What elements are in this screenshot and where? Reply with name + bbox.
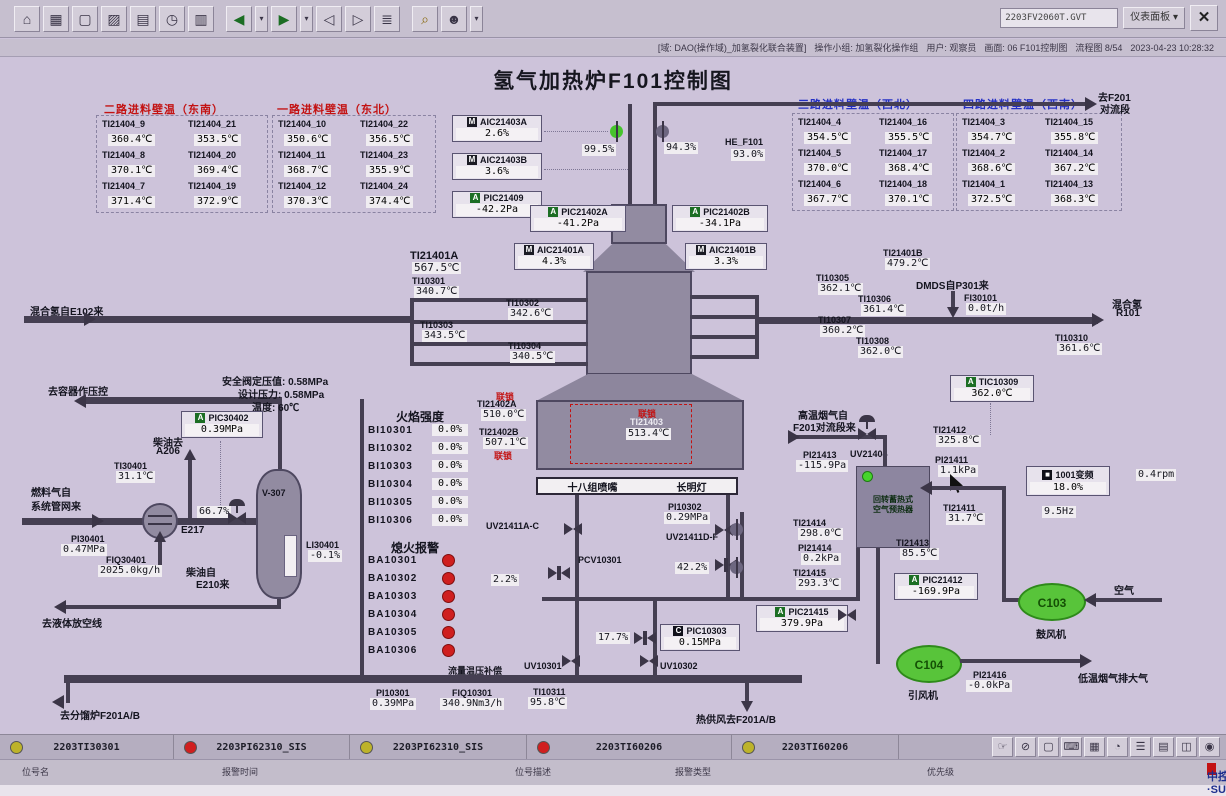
pi10301-value: 0.39MPa <box>370 698 416 710</box>
fuel-valve-value: 66.7% <box>197 506 231 518</box>
history-icon[interactable]: ◷ <box>159 6 185 32</box>
alarm-priority-dot <box>360 741 373 754</box>
user-menu-icon[interactable]: ▾ <box>470 6 483 32</box>
a-badge: A <box>548 207 558 217</box>
valve-actuator-icon <box>229 499 245 506</box>
wall-temp-item: TI21404_3354.7℃ <box>962 117 1033 145</box>
report-icon[interactable]: ▥ <box>188 6 214 32</box>
fuel-gas-label2: 系统管网来 <box>31 498 81 513</box>
v307-level-gauge <box>284 535 297 577</box>
uv21411df-tag: UV21411D-F <box>666 532 718 542</box>
home-icon[interactable]: ⌂ <box>14 6 40 32</box>
a-badge: A <box>775 607 785 617</box>
wall-temp-panel-4: TI21404_3354.7℃TI21404_15355.8℃TI21404_2… <box>956 113 1122 211</box>
alarm-dot-icon <box>442 644 455 657</box>
furnace-upper-body <box>586 271 692 375</box>
pi10301-tag: PI10301 <box>376 688 410 698</box>
to-frac-label: 去分馏炉F201A/B <box>60 707 140 722</box>
flameout-row: BA10306 <box>368 644 455 657</box>
e217-label: E217 <box>181 525 204 536</box>
a-badge: A <box>470 193 480 203</box>
m-badge: M <box>467 155 477 165</box>
pi21414-value: 0.2kPa <box>801 553 841 565</box>
grid-icon[interactable]: ▦ <box>1084 737 1105 757</box>
wall-temp-item: TI21404_6367.7℃ <box>798 179 867 207</box>
field-tagname: 位号名 <box>22 765 49 778</box>
process-diagram: 氢气加热炉F101控制图 二路进料壁温（东南） 一路进料壁温（东北） 三路进料壁… <box>0 57 1226 734</box>
damper-b-value: 94.3% <box>664 142 698 154</box>
fiq30401-value: 2025.0kg/h <box>98 565 162 577</box>
ti10311-value: 95.8℃ <box>528 697 567 709</box>
blower-label: 鼓风机 <box>1036 626 1066 641</box>
status-user: 用户: 观察员 <box>926 41 976 54</box>
ti10303-value: 343.5℃ <box>422 330 467 342</box>
drain-pipe <box>66 605 281 609</box>
aic21401a-box[interactable]: MAIC21401A 4.3% <box>514 243 594 270</box>
furnace-shoulder <box>536 374 744 401</box>
wall-temp-item: TI21404_23355.9℃ <box>360 150 430 178</box>
fuel-gas-pipe <box>22 518 258 525</box>
pass-pipe-3 <box>410 342 588 346</box>
aic21401b-box[interactable]: MAIC21401B 3.3% <box>685 243 767 270</box>
uv21404-actuator-icon <box>859 415 875 422</box>
ti21411-tag: TI21411 <box>943 503 976 513</box>
flame-row: BI103010.0% <box>368 424 468 436</box>
status-bar: [域: DAO(操作域)_加氢裂化联合装置] 操作小组: 加氢裂化操作组 用户:… <box>0 39 1226 57</box>
ti21402a-value: 510.0℃ <box>481 409 526 421</box>
frac-branch <box>66 683 70 703</box>
status-datetime: 2023-04-23 10:28:32 <box>1130 43 1214 53</box>
tic10309-box[interactable]: ATIC10309 362.0℃ <box>950 375 1034 402</box>
pic30402-box[interactable]: APIC30402 0.39MPa <box>181 411 263 438</box>
interlock-label-b: 联锁 <box>494 449 512 462</box>
wall-temp-item: TI21404_7371.4℃ <box>102 181 176 209</box>
aic21403b-box[interactable]: MAIC21403B 3.6% <box>452 153 542 180</box>
air-trim-valve-icon[interactable] <box>838 609 856 621</box>
wall-temp-item: TI21404_19372.9℃ <box>188 181 262 209</box>
m-badge: M <box>696 245 706 255</box>
low-flue-label: 低温烟气排大气 <box>1078 670 1148 685</box>
feed-manifold <box>410 298 414 364</box>
ti10301-tag: TI10301 <box>412 276 445 286</box>
fuel-branch-valve-icon[interactable] <box>634 631 656 645</box>
ti10304-value: 340.5℃ <box>510 351 555 363</box>
flameout-row: BA10301 <box>368 554 455 567</box>
wall-temp-panel-3: TI21404_4354.5℃TI21404_16355.5℃TI21404_5… <box>792 113 954 211</box>
c-badge: C <box>673 626 683 636</box>
to-drain-label: 去液体放空线 <box>42 615 102 630</box>
hot-flue-label2: F201对流段来 <box>793 419 856 434</box>
diesel-out-pipe <box>188 459 192 519</box>
fiq10301-tag: FIQ10301 <box>452 688 492 698</box>
ti21402b-value: 507.1℃ <box>483 437 528 449</box>
pic21409-box[interactable]: APIC21409 -42.2Pa <box>452 191 542 218</box>
alarm-priority-dot <box>184 741 197 754</box>
uv10302-valve-icon[interactable] <box>640 655 658 667</box>
user-icon[interactable]: ☻ <box>441 6 467 32</box>
monitor-icon[interactable]: ▢ <box>1038 737 1059 757</box>
flameout-row: BA10304 <box>368 608 455 621</box>
uv21404-valve-icon[interactable] <box>858 428 876 440</box>
flame-title: 火焰强度 <box>396 408 444 425</box>
diesel-from-label2: E210来 <box>196 576 229 591</box>
flame-intensity-list: BI103010.0%BI103020.0%BI103030.0%BI10304… <box>368 424 468 526</box>
diesel-out-arrow <box>184 449 196 460</box>
vfd-hz-value: 9.5Hz <box>1042 506 1076 518</box>
ti21403-tag: TI21403 <box>630 417 663 427</box>
preheater-air-out <box>856 548 860 600</box>
flame-row: BI103020.0% <box>368 442 468 454</box>
stack-damper-a-icon[interactable] <box>610 125 623 138</box>
alarm-priority-dot <box>10 741 23 754</box>
ti10303-tag: TI10303 <box>420 320 453 330</box>
uv10301-valve-icon[interactable] <box>562 655 580 667</box>
alarm-dot-icon <box>442 572 455 585</box>
wall-temp-panel-1: TI21404_10350.6℃TI21404_22356.5℃TI21404_… <box>272 115 436 213</box>
diesel-to-label2: A206 <box>156 446 180 457</box>
ti21415-tag: TI21415 <box>793 568 826 578</box>
instrument-panel-button[interactable]: 仪表面板 ▾ <box>1123 7 1185 29</box>
ti21401b-tag: TI21401B <box>883 248 923 258</box>
alarm-cell[interactable]: 2203TI60206 <box>732 735 899 759</box>
uv10302-tag: UV10302 <box>660 661 698 671</box>
disable-icon[interactable]: ⊘ <box>1015 737 1036 757</box>
field-alarmtime: 报警时间 <box>222 765 258 778</box>
left-boundary-pipe <box>360 399 364 679</box>
flame-row: BI103030.0% <box>368 460 468 472</box>
ti10304-tag: TI10304 <box>508 341 541 351</box>
preheater-inlet <box>883 435 887 467</box>
list-icon[interactable]: ☰ <box>1130 737 1151 757</box>
li30401-tag: LI30401 <box>306 540 339 550</box>
alarm-dot-icon <box>442 626 455 639</box>
wall-temp-item: TI21404_24374.4℃ <box>360 181 430 209</box>
ti21401b-value: 479.2℃ <box>885 258 930 270</box>
he-f101-tag: HE_F101 <box>725 137 763 147</box>
alarm-cell[interactable]: 2203PI62310_SIS <box>174 735 350 759</box>
pic21402a-box[interactable]: APIC21402A -41.2Pa <box>530 205 626 232</box>
flameout-row: BA10302 <box>368 572 455 585</box>
dmds-arrow <box>947 307 959 318</box>
preheater-label: 回转蓄热式 <box>857 495 929 505</box>
wall-temp-item: TI21404_8370.1℃ <box>102 150 176 178</box>
ti30401-tag: TI30401 <box>114 461 147 471</box>
feed-arrow <box>84 312 96 326</box>
ti10305-tag: TI10305 <box>816 273 849 283</box>
dmds-label: DMDS自P301来 <box>916 277 989 292</box>
ti10301-value: 340.7℃ <box>414 286 459 298</box>
pass-pipe-4 <box>410 362 588 366</box>
ti21411-value: 31.7℃ <box>946 513 985 525</box>
id-fan-label: 引风机 <box>908 687 938 702</box>
diesel-in-pipe <box>158 539 162 565</box>
flame-row: BI103060.0% <box>368 514 468 526</box>
a-badge: A <box>690 207 700 217</box>
m-badge: M <box>467 117 477 127</box>
main-toolbar: ⌂ ▦ ▢ ▨ ▤ ◷ ▥ ◀ ▾ ▶ ▾ ◁ ▷ ≣ ⌕ ☻ ▾ 2203FV… <box>0 0 1226 38</box>
alarm-bar: 2203TI30301 2203PI62310_SIS 2203PI62310_… <box>0 734 1226 759</box>
uv21411ac-tag: UV21411A-C <box>486 521 539 531</box>
pc-arrow <box>74 394 86 408</box>
flameout-row: BA10303 <box>368 590 455 603</box>
outlet-arrow <box>1092 313 1104 327</box>
fiq10301-value: 340.9Nm3/h <box>440 698 504 710</box>
pic21412-box[interactable]: APIC21412 -169.9Pa <box>894 573 978 600</box>
page-prev-icon[interactable]: ◁ <box>316 6 342 32</box>
wall-temp-item: TI21404_14367.2℃ <box>1045 148 1116 176</box>
pi21413-tag: PI21413 <box>803 450 837 460</box>
burner-pcv-value: 2.2% <box>491 574 519 586</box>
vfd-rpm-value: 0.4rpm <box>1136 469 1176 481</box>
pi30401-value: 0.47MPa <box>61 544 107 556</box>
ti21414-value: 298.0℃ <box>798 528 843 540</box>
air-supply-pipe <box>930 486 1006 490</box>
fuel-gas-label: 燃料气自 <box>31 484 71 499</box>
fiq30401-tag: FIQ30401 <box>106 555 146 565</box>
li30401-value: -0.1% <box>308 550 342 562</box>
report-icon[interactable]: ▤ <box>1153 737 1174 757</box>
screen-icon[interactable]: ▢ <box>72 6 98 32</box>
pi21413-value: -115.9Pa <box>796 460 848 472</box>
wall-temp-panel-2: TI21404_9360.4℃TI21404_21353.5℃TI21404_8… <box>96 115 268 213</box>
forward-icon[interactable]: ▶ <box>271 6 297 32</box>
wall-temp-item: TI21404_5370.0℃ <box>798 148 867 176</box>
pass-pipe-1 <box>410 298 588 302</box>
a-badge: A <box>195 413 205 423</box>
ti21401a-value: 567.5℃ <box>412 262 461 274</box>
he-f101-value: 93.0% <box>731 149 765 161</box>
air-damper-b-icon[interactable] <box>730 561 743 574</box>
m-badge: M <box>524 245 534 255</box>
hot-air-branch <box>745 683 749 701</box>
group-icon[interactable]: ▤ <box>130 6 156 32</box>
outlet-pipe <box>755 317 1098 324</box>
window-icon[interactable]: ◫ <box>1176 737 1197 757</box>
overview-icon[interactable]: ▦ <box>43 6 69 32</box>
alarm-toolbar: ☞ ⊘ ▢ ⌨ ▦ ◔ ☰ ▤ ◫ ◉ <box>899 735 1226 759</box>
flame-row: BI103040.0% <box>368 478 468 490</box>
pilot-label: 长明灯 <box>677 479 707 494</box>
alarm-field-bar: 位号名 报警时间 位号描述 报警类型 优先级 中控·SUPCON <box>0 759 1226 785</box>
status-flow[interactable]: 流程图 8/54 <box>1075 41 1122 54</box>
air-inlet-pipe <box>1094 598 1162 602</box>
preheater-run-indicator <box>862 471 873 482</box>
book-icon[interactable]: ≣ <box>374 6 400 32</box>
pic10303-box[interactable]: CPIC10303 0.15MPa <box>660 624 740 651</box>
target-icon[interactable]: ◉ <box>1199 737 1220 757</box>
pilot-fuel-pipe <box>726 495 730 600</box>
ti10310-value: 361.6℃ <box>1057 343 1102 355</box>
a-badge: A <box>966 377 976 387</box>
ti10308-value: 362.0℃ <box>858 346 903 358</box>
flue-out-pipe <box>960 659 1082 663</box>
pi21414-tag: PI21414 <box>798 543 832 553</box>
fi30101-tag: FI30101 <box>964 293 997 303</box>
wall-temp-item: TI21404_10350.6℃ <box>278 119 348 147</box>
ti10311-tag: TI10311 <box>533 687 566 697</box>
pilot-valve-value: 42.2% <box>675 562 709 574</box>
ti10302-tag: TI10302 <box>506 298 539 308</box>
to-f201-label2: 对流段 <box>1100 101 1130 116</box>
alarm-dot-icon <box>442 590 455 603</box>
vfd1001-box[interactable]: ■1001变频 18.0% <box>1026 466 1110 496</box>
wall-temp-item: TI21404_20369.4℃ <box>188 150 262 178</box>
overhead-pipe <box>653 102 1085 106</box>
air-supply-arrow <box>920 481 932 495</box>
alarm-cell[interactable]: 2203TI30301 <box>0 735 174 759</box>
wall-temp-item: TI21404_21353.5℃ <box>188 119 262 147</box>
preheater-label2: 空气预热器 <box>857 505 929 515</box>
wall-temp-item: TI21404_17368.4℃ <box>879 148 948 176</box>
flameout-row: BA10305 <box>368 626 455 639</box>
pi21416-value: -0.0kPa <box>966 680 1012 692</box>
fuel-branch-valve-value: 17.7% <box>596 632 630 644</box>
page-next-icon[interactable]: ▷ <box>345 6 371 32</box>
alarm-priority-dot <box>742 741 755 754</box>
wall-temp-item: TI21404_22356.5℃ <box>360 119 430 147</box>
uv10301-tag: UV10301 <box>524 661 562 671</box>
stack-damper-b-icon[interactable] <box>656 125 669 138</box>
back-icon[interactable]: ◀ <box>226 6 252 32</box>
air-label: 空气 <box>1114 582 1134 597</box>
c103-blower[interactable]: C103 <box>1018 583 1086 621</box>
field-priority: 优先级 <box>927 765 954 778</box>
hot-flue-arrow <box>788 430 800 444</box>
keyboard-icon[interactable]: ⌨ <box>1061 737 1082 757</box>
ti21413-tag: TI21413 <box>896 538 929 548</box>
pcv10301-valve-icon[interactable] <box>548 566 570 580</box>
diesel-in-arrow <box>154 531 166 542</box>
flue-pipe-a <box>628 104 632 204</box>
search-icon[interactable]: ⌕ <box>412 6 438 32</box>
uv21411ac-valve-icon[interactable] <box>564 523 582 535</box>
air-riser <box>1002 486 1006 602</box>
ti21412-value: 325.8℃ <box>936 435 981 447</box>
flameout-alarm-list: BA10301BA10302BA10303BA10304BA10305BA103… <box>368 554 455 657</box>
compensation-label: 流量温压补偿 <box>448 664 502 677</box>
wall-temp-item: TI21404_12370.3℃ <box>278 181 348 209</box>
arrow-to-f201 <box>1085 97 1097 111</box>
dcs-application: ⌂ ▦ ▢ ▨ ▤ ◷ ▥ ◀ ▾ ▶ ▾ ◁ ▷ ≣ ⌕ ☻ ▾ 2203FV… <box>0 0 1226 785</box>
close-icon[interactable]: ✕ <box>1190 5 1218 31</box>
flue-out-arrow <box>1080 654 1092 668</box>
pass-out-3 <box>690 335 757 339</box>
pass-out-4 <box>690 355 757 359</box>
burner-header: 十八组喷嘴 长明灯 <box>536 477 738 495</box>
pic21402b-box[interactable]: APIC21402B -34.1Pa <box>672 205 768 232</box>
field-alarmtype: 报警类型 <box>675 765 711 778</box>
page-title: 氢气加热炉F101控制图 <box>0 65 1226 95</box>
uv21404-tag: UV21404 <box>850 449 888 459</box>
burners-label: 十八组喷嘴 <box>568 479 618 494</box>
ti10306-tag: TI10306 <box>858 294 891 304</box>
pi21411-value: 1.1kPa <box>938 465 978 477</box>
status-screen: 画面: 06 F101控制图 <box>984 41 1067 54</box>
a-badge: A <box>909 575 919 585</box>
pi21411-tag: PI21411 <box>935 455 968 465</box>
hot-air-label: 热供风去F201A/B <box>696 711 776 726</box>
pic21415-box[interactable]: APIC21415 379.9Pa <box>756 605 848 632</box>
fuel-control-valve-icon[interactable] <box>228 512 246 524</box>
field-description: 位号描述 <box>515 765 551 778</box>
pi21416-tag: PI21416 <box>973 670 1007 680</box>
fuel-gas-arrow <box>92 514 104 528</box>
back-menu-icon[interactable]: ▾ <box>255 6 268 32</box>
ti10308-tag: TI10308 <box>856 336 889 346</box>
alarm-cell[interactable]: 2203PI62310_SIS <box>350 735 527 759</box>
wall-temp-item: TI21404_15355.8℃ <box>1045 117 1116 145</box>
flue-downcomer <box>876 548 880 664</box>
ti21415-value: 293.3℃ <box>796 578 841 590</box>
pass-out-2 <box>690 315 757 319</box>
pi10302-tag: PI10302 <box>668 502 702 512</box>
air-damper-a-icon[interactable] <box>730 523 743 536</box>
supcon-logo: 中控·SUPCON <box>1207 763 1216 775</box>
status-domain: [域: DAO(操作域)_加氢裂化联合装置] <box>658 41 807 54</box>
ti21413-value: 85.5℃ <box>900 548 939 560</box>
ti10310-tag: TI10310 <box>1055 333 1088 343</box>
document-selector[interactable]: 2203FV2060T.GVT <box>1000 8 1118 28</box>
hand-icon[interactable]: ☞ <box>992 737 1013 757</box>
pi10302-value: 0.29MPa <box>664 512 710 524</box>
ti30401-value: 31.1℃ <box>116 471 155 483</box>
forward-menu-icon[interactable]: ▾ <box>300 6 313 32</box>
wall-temp-item: TI21404_9360.4℃ <box>102 119 176 147</box>
square-badge: ■ <box>1042 470 1052 480</box>
ti21402a-tag: TI21402A <box>477 399 517 409</box>
mix-h2-out-label2: R101 <box>1116 308 1140 319</box>
c104-id-fan[interactable]: C104 <box>896 645 962 683</box>
status-group: 操作小组: 加氢裂化操作组 <box>814 41 918 54</box>
pi30401-tag: PI30401 <box>71 534 105 544</box>
wall-temp-item: TI21404_2368.6℃ <box>962 148 1033 176</box>
wall-temp-item: TI21404_13368.3℃ <box>1045 179 1116 207</box>
hot-air-duct <box>64 675 802 683</box>
wall-temp-item: TI21404_4354.5℃ <box>798 117 867 145</box>
pass-out-1 <box>690 295 757 299</box>
v307-label: V-307 <box>262 488 286 498</box>
ti10302-value: 342.6℃ <box>508 308 553 320</box>
wall-temp-item: TI21404_11368.7℃ <box>278 150 348 178</box>
flue-pipe-b <box>653 104 657 204</box>
aic21403a-box[interactable]: MAIC21403A 2.6% <box>452 115 542 142</box>
flame-row: BI103050.0% <box>368 496 468 508</box>
alarm-priority-dot <box>537 741 550 754</box>
alarm-cell[interactable]: 2203TI60206 <box>527 735 732 759</box>
ti21403-value: 513.4℃ <box>626 428 671 440</box>
pcv10301-tag: PCV10301 <box>578 555 622 565</box>
outlet-manifold <box>755 295 759 359</box>
air-inlet-arrow <box>1084 593 1096 607</box>
fuel-header-pipe <box>542 597 860 601</box>
alarm-dot-icon <box>442 608 455 621</box>
wall-temp-item: TI21404_18370.1℃ <box>879 179 948 207</box>
clock-icon[interactable]: ◔ <box>1107 737 1128 757</box>
alarm-dot-icon <box>442 554 455 567</box>
furnace-neck <box>583 244 695 272</box>
ti21402b-tag: TI21402B <box>479 427 519 437</box>
trend-icon[interactable]: ▨ <box>101 6 127 32</box>
ti10306-value: 361.4℃ <box>861 304 906 316</box>
ti21414-tag: TI21414 <box>793 518 826 528</box>
feed-pipe <box>24 316 412 323</box>
fi30101-value: 0.0t/h <box>966 303 1006 315</box>
ti10305-value: 362.1℃ <box>818 283 863 295</box>
damper-a-value: 99.5% <box>582 144 616 156</box>
ti21412-tag: TI21412 <box>933 425 966 435</box>
drain-arrow <box>54 600 66 614</box>
wall-temp-item: TI21404_16355.5℃ <box>879 117 948 145</box>
